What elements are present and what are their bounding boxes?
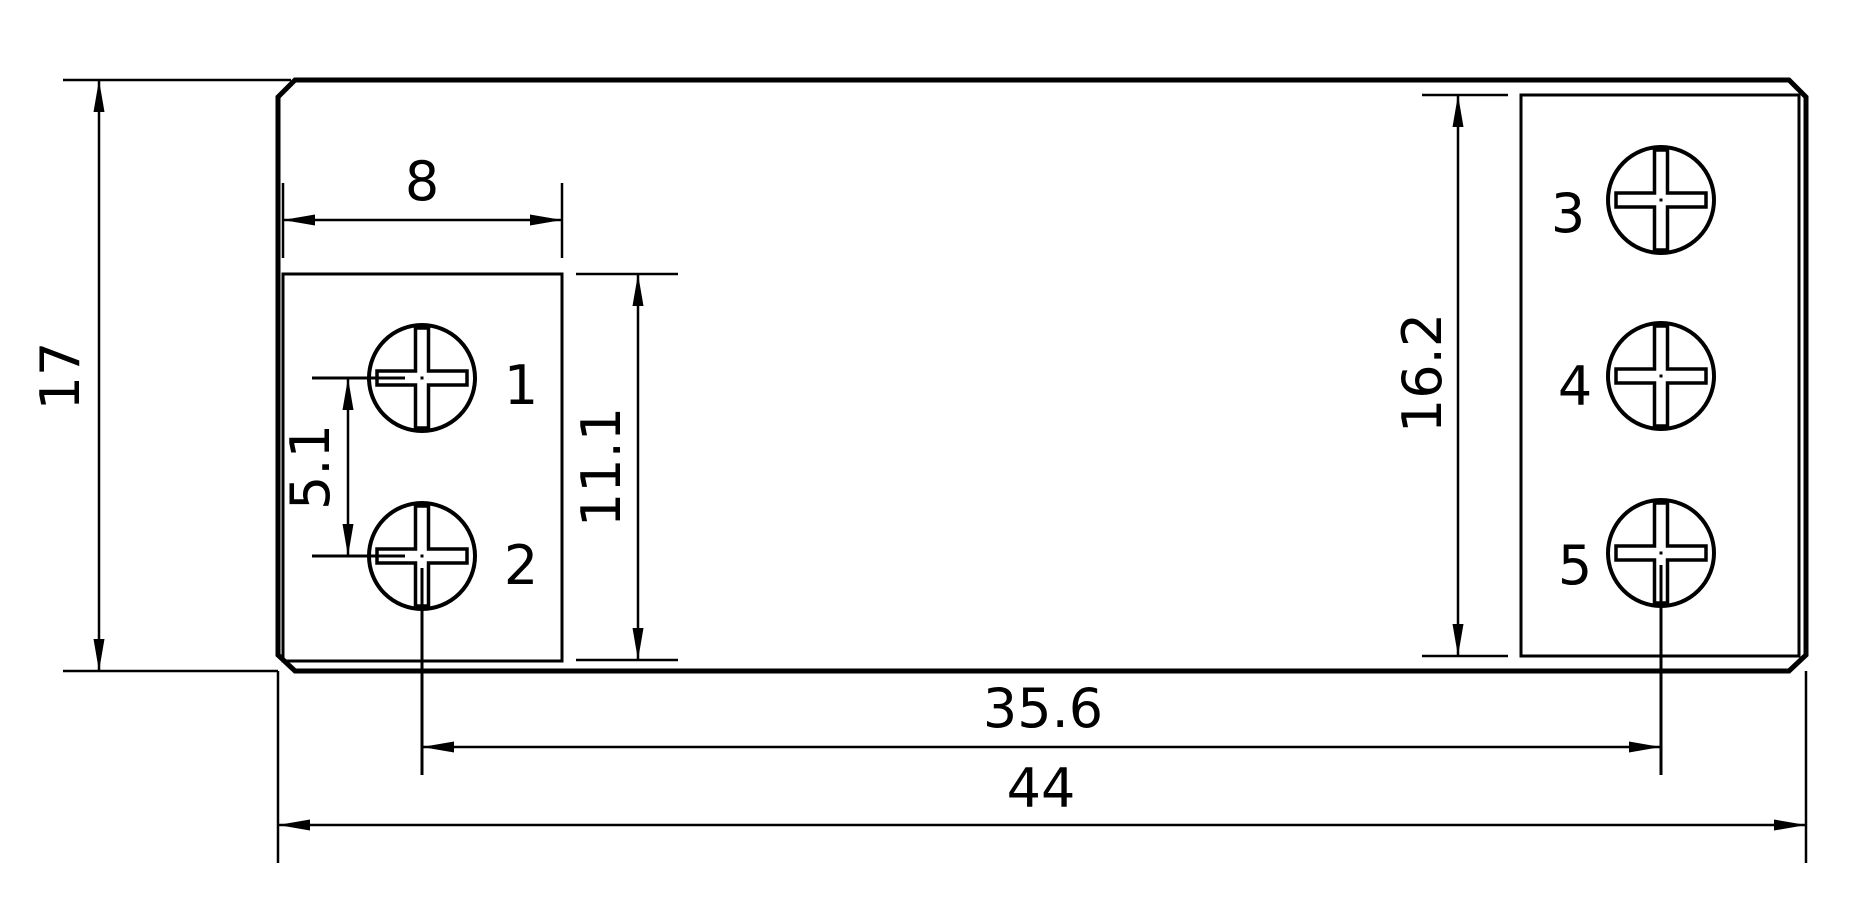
- dim-text-left-screw-pitch: 5.1: [279, 424, 342, 510]
- dim-screw-span: 35.6: [422, 677, 1661, 753]
- arrowhead-down: [633, 628, 644, 660]
- dim-overall-height: 17: [29, 80, 291, 671]
- terminal-number-3: 3: [1551, 182, 1585, 245]
- dim-text-overall-width: 44: [1007, 757, 1076, 820]
- dim-right-block-height: 16.2: [1391, 95, 1508, 656]
- arrowhead-up: [1453, 95, 1464, 127]
- drawing-page: 17 8 5.1 11.1 16.2 35.6: [0, 0, 1866, 901]
- screw-terminal-4: [1608, 323, 1714, 429]
- arrowhead-up: [343, 378, 354, 410]
- arrowhead-right: [1629, 742, 1661, 753]
- arrowhead-left: [278, 820, 310, 831]
- drawing-canvas: 17 8 5.1 11.1 16.2 35.6: [0, 0, 1866, 901]
- screw-terminal-3: [1608, 147, 1714, 253]
- terminal-number-2: 2: [504, 534, 538, 597]
- terminal-number-5: 5: [1558, 534, 1592, 597]
- dim-left-block-height: 11.1: [570, 274, 678, 660]
- dim-left-screw-pitch: 5.1: [279, 378, 354, 556]
- arrowhead-down: [343, 524, 354, 556]
- dim-text-right-block-height: 16.2: [1391, 313, 1454, 433]
- arrowhead-down: [1453, 624, 1464, 656]
- arrowhead-down: [94, 639, 105, 671]
- arrowhead-right: [1774, 820, 1806, 831]
- dim-text-overall-height: 17: [29, 342, 92, 411]
- dim-text-left-block-height: 11.1: [570, 407, 633, 527]
- arrowhead-up: [633, 274, 644, 306]
- arrowhead-right: [530, 215, 562, 226]
- dim-text-screw-span: 35.6: [983, 677, 1103, 740]
- arrowhead-left: [422, 742, 454, 753]
- arrowhead-left: [283, 215, 315, 226]
- arrowhead-up: [94, 80, 105, 112]
- dim-left-block-width: 8: [283, 150, 562, 258]
- terminal-number-1: 1: [504, 354, 538, 417]
- dim-text-left-block-width: 8: [405, 150, 439, 213]
- terminal-number-4: 4: [1558, 355, 1592, 418]
